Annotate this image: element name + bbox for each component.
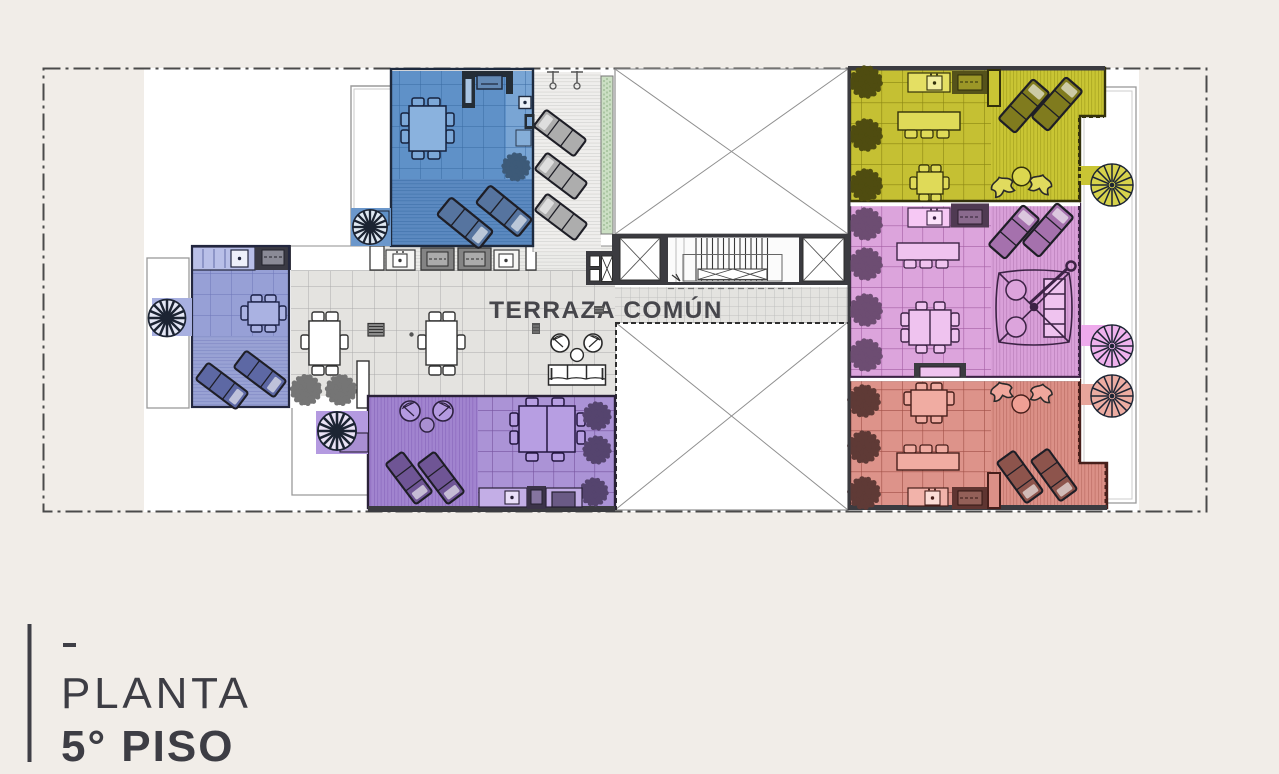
svg-text:5° PISO: 5° PISO — [61, 722, 234, 771]
svg-text:PLANTA: PLANTA — [61, 669, 252, 718]
svg-text:TERRAZA COMÚN: TERRAZA COMÚN — [489, 296, 723, 324]
